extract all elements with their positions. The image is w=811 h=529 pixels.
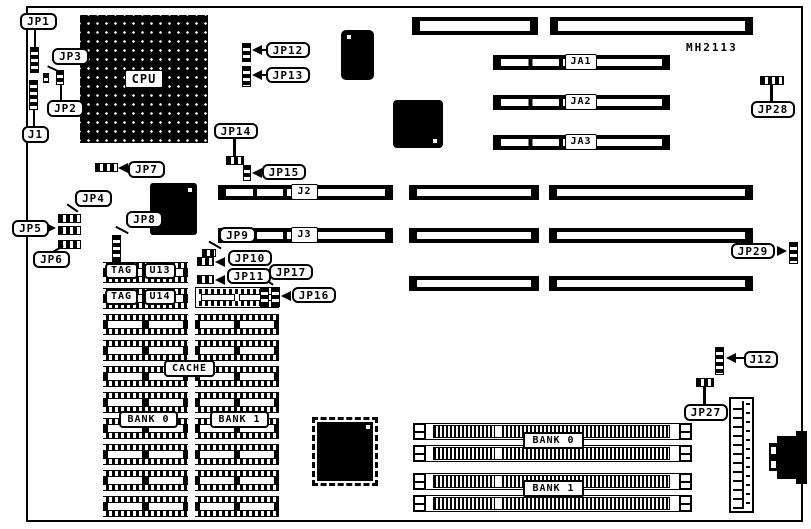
- dip-window: [108, 451, 142, 458]
- dip-window: [240, 477, 274, 484]
- jp28-label: JP28: [751, 101, 795, 118]
- expansion-slot: [409, 228, 539, 243]
- simm-bank1-label: BANK 1: [523, 480, 584, 497]
- jp13-label: JP13: [266, 67, 310, 83]
- dip-window: [240, 451, 274, 458]
- qfp-chip-body: [317, 422, 373, 481]
- jp29-arrow: [777, 246, 787, 256]
- jp11-jumper: [197, 275, 214, 284]
- j12-label: J12: [744, 351, 778, 368]
- jp14-stem: [233, 138, 236, 156]
- dip-pins: [195, 459, 279, 464]
- jp9-label: JP9: [219, 227, 256, 243]
- ic-chip-left-dot: [188, 188, 192, 192]
- cache-chip: [103, 444, 188, 465]
- simm-latch-right: [679, 495, 692, 512]
- jp15-arrow: [252, 168, 262, 178]
- dip-pins: [103, 381, 188, 386]
- slot-j2: J2: [218, 185, 393, 200]
- dip-window: [200, 451, 234, 458]
- dip-window: [108, 399, 142, 406]
- j3-label: J3: [291, 227, 318, 243]
- ja1-label: JA1: [565, 54, 597, 70]
- dip-window: [149, 451, 183, 458]
- simm-slot: [413, 495, 692, 512]
- ic-chip-small-dot: [347, 35, 351, 39]
- dip-window: [200, 503, 234, 510]
- dip-pins: [103, 393, 188, 398]
- j12-jumper: [715, 347, 724, 375]
- dip-window: [108, 477, 142, 484]
- jp7-arrow: [118, 163, 128, 173]
- jp1-label: JP1: [20, 13, 57, 30]
- j12-stem: [735, 357, 744, 359]
- dip-pins: [195, 329, 279, 334]
- dip-window: [200, 321, 234, 328]
- cache-chip: [195, 340, 279, 361]
- dip-window: [108, 373, 142, 380]
- jp27-jumper: [696, 378, 714, 387]
- cache-chip: [195, 496, 279, 517]
- jp27-label: JP27: [684, 404, 728, 421]
- dip-pins: [103, 471, 188, 476]
- tag-u14-label: TAG: [105, 289, 138, 305]
- ic-chip-small: [341, 30, 374, 80]
- cache-chip: [103, 314, 188, 335]
- qfp-chip-dot: [366, 425, 370, 429]
- jp16-label: JP16: [292, 287, 336, 303]
- dip-window: [240, 321, 274, 328]
- dip-window: [149, 347, 183, 354]
- dip-pins: [195, 511, 279, 516]
- jp29-label: JP29: [731, 243, 775, 259]
- simm-latch-right: [679, 445, 692, 462]
- simm-contacts: [433, 497, 670, 510]
- dip-window: [149, 477, 183, 484]
- slot-ja1: JA1: [493, 55, 670, 70]
- expansion-slot: [409, 276, 539, 291]
- dip-pins: [195, 433, 279, 438]
- jp12-jumper: [242, 43, 251, 62]
- dip-pins: [103, 433, 188, 438]
- jp11-label: JP11: [227, 268, 271, 284]
- cache-chip: [195, 314, 279, 335]
- cache-bank1-label: BANK 1: [210, 411, 269, 428]
- dip-pins: [195, 381, 279, 386]
- dip-pins: [195, 341, 279, 346]
- keyboard-connector-hole-top: [771, 447, 776, 454]
- cache-chip: [103, 340, 188, 361]
- j1-label: J1: [22, 126, 49, 143]
- dip-pins: [103, 459, 188, 464]
- simm-latch-left: [413, 473, 426, 490]
- expansion-slot-stripe: [557, 232, 745, 239]
- qfp-chip: [312, 417, 378, 486]
- cache-chip: [195, 444, 279, 465]
- jp16-jumper: [271, 287, 280, 307]
- u14-label: U14: [144, 289, 176, 305]
- board-model: MH2113: [686, 41, 738, 54]
- cache-bank0-label: BANK 0: [119, 411, 178, 428]
- jp15-label: JP15: [262, 164, 306, 180]
- jp4-label: JP4: [75, 190, 112, 207]
- dip-window: [240, 399, 274, 406]
- expansion-slot-stripe: [420, 21, 530, 31]
- expansion-slot-stripe: [557, 280, 745, 287]
- jp5-jumper: [58, 226, 81, 235]
- j1-connector: [29, 80, 38, 110]
- jp27-stem: [703, 387, 706, 404]
- dip-pins: [195, 471, 279, 476]
- cpu-label: CPU: [125, 70, 163, 88]
- ja3-label: JA3: [565, 134, 597, 150]
- dip-window: [200, 347, 234, 354]
- jp13-jumper: [242, 66, 251, 87]
- expansion-slot-stripe: [417, 280, 531, 287]
- jp14-jumper: [226, 156, 244, 165]
- jp2-stem: [60, 85, 62, 101]
- jp10-label: JP10: [228, 250, 272, 266]
- dip-pins: [195, 393, 279, 398]
- simm-latch-left: [413, 423, 426, 440]
- expansion-slot-stripe: [417, 232, 531, 239]
- power-connector: [729, 397, 754, 513]
- dip-pins: [195, 445, 279, 450]
- simm-latch-left: [413, 495, 426, 512]
- ja2-label: JA2: [565, 94, 597, 110]
- dip-window: [149, 321, 183, 328]
- jp29-jumper: [789, 242, 798, 264]
- jp10-arrow: [215, 257, 225, 267]
- slot-ja2: JA2: [493, 95, 670, 110]
- dip-pins: [103, 485, 188, 490]
- cache-label: CACHE: [164, 360, 215, 377]
- motherboard-diagram: CPU JP1 JP3 JP2 J1 JP12 JP13 JP14 JP15 J…: [0, 0, 811, 529]
- jp7-jumper: [95, 163, 118, 172]
- simm-bank0-label: BANK 0: [523, 432, 584, 449]
- jp4-jumper: [58, 214, 81, 223]
- jp12-label: JP12: [266, 42, 310, 58]
- expansion-slot: [550, 17, 753, 35]
- dip-window: [200, 399, 234, 406]
- expansion-slot: [549, 185, 753, 200]
- dip-window: [240, 373, 274, 380]
- jp17-label: JP17: [269, 264, 313, 280]
- dip-pins: [103, 329, 188, 334]
- slot-ja3: JA3: [493, 135, 670, 150]
- jp2-label: JP2: [47, 100, 84, 117]
- jp8-jumper: [112, 235, 121, 262]
- simm-latch-right: [679, 473, 692, 490]
- tag-u13-label: TAG: [105, 263, 138, 279]
- dip-pins: [103, 445, 188, 450]
- expansion-slot: [549, 228, 753, 243]
- cache-chip: [103, 392, 188, 413]
- simm-latch-left: [413, 445, 426, 462]
- dip-pins: [195, 315, 279, 320]
- dip-pins: [103, 341, 188, 346]
- dip-pins: [195, 485, 279, 490]
- cache-chip: [195, 392, 279, 413]
- u13-label: U13: [144, 263, 176, 279]
- jp3-label: JP3: [52, 48, 89, 65]
- dip-window: [149, 399, 183, 406]
- keyboard-connector-shell: [796, 431, 807, 484]
- jp7-label: JP7: [128, 161, 165, 178]
- power-connector-ticks: [746, 403, 750, 507]
- dip-window: [240, 503, 274, 510]
- jp14-label: JP14: [214, 123, 258, 139]
- dip-window: [149, 503, 183, 510]
- jp28-stem: [770, 85, 773, 101]
- jp6-label: JP6: [33, 251, 70, 268]
- jp17-jumper: [260, 287, 269, 307]
- ic-chip-mid-dot: [433, 139, 437, 143]
- jp3-jumper: [43, 73, 49, 83]
- dip-window: [240, 347, 274, 354]
- jp8-label: JP8: [126, 211, 163, 228]
- dip-window: [200, 477, 234, 484]
- jp15-jumper: [243, 165, 251, 181]
- jp9-jumper: [202, 249, 216, 257]
- dip-pins: [103, 497, 188, 502]
- cache-chip: [103, 470, 188, 491]
- jp1-jumper: [30, 47, 39, 73]
- dip-pins: [195, 497, 279, 502]
- simm-latch-right: [679, 423, 692, 440]
- expansion-slot: [409, 185, 539, 200]
- power-connector-pins: [733, 401, 744, 509]
- jp16-arrow: [281, 291, 291, 301]
- dip-window: [108, 347, 142, 354]
- jp11-arrow: [215, 275, 225, 285]
- expansion-slot-stripe: [557, 189, 745, 196]
- keyboard-connector-hole-bottom: [771, 461, 776, 468]
- j1-stem: [33, 109, 35, 127]
- expansion-slot-stripe: [558, 21, 745, 31]
- jp5-label: JP5: [12, 220, 49, 237]
- dip-pins: [103, 315, 188, 320]
- dip-window: [201, 294, 235, 301]
- jp10-jumper: [197, 257, 214, 266]
- dip-pins: [103, 511, 188, 516]
- expansion-slot: [549, 276, 753, 291]
- cache-chip: [103, 496, 188, 517]
- cache-chip: [195, 470, 279, 491]
- dip-window: [108, 503, 142, 510]
- expansion-slot: [412, 17, 538, 35]
- expansion-slot-stripe: [417, 189, 531, 196]
- jp1-stem: [34, 29, 36, 47]
- jp28-jumper: [760, 76, 784, 85]
- dip-window: [108, 321, 142, 328]
- j2-label: J2: [291, 184, 318, 200]
